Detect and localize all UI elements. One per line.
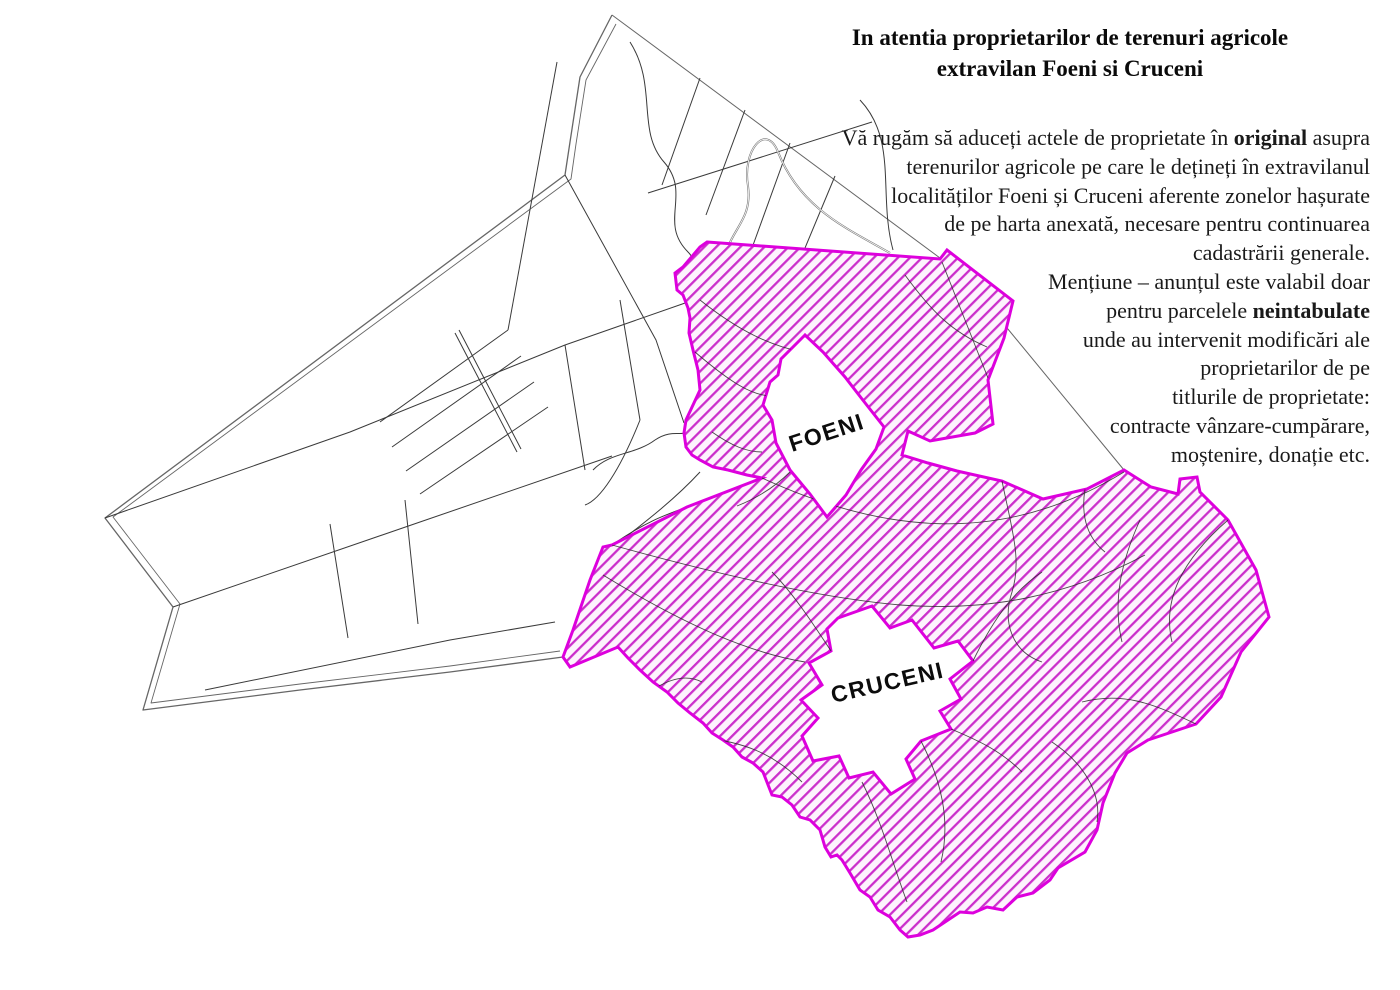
- body-line-6: Mențiune – anunțul este valabil doar: [770, 268, 1370, 297]
- body-line-2: terenurilor agricole pe care le dețineți…: [770, 153, 1370, 182]
- announcement-text-block: In atentia proprietarilor de terenuri ag…: [770, 22, 1370, 470]
- body-line-10: titlurile de proprietate:: [770, 383, 1370, 412]
- announcement-body: Vă rugăm să aduceți actele de proprietat…: [770, 124, 1370, 470]
- body-line-9: proprietarilor de pe: [770, 354, 1370, 383]
- body-line-4: de pe harta anexată, necesare pentru con…: [770, 210, 1370, 239]
- label-cruceni: CRUCENI: [828, 657, 946, 708]
- body-line-7: pentru parcelele neintabulate: [770, 297, 1370, 326]
- body-line-8: unde au intervenit modificări ale: [770, 326, 1370, 355]
- body-line-1: Vă rugăm să aduceți actele de proprietat…: [770, 124, 1370, 153]
- announcement-page: FOENI CRUCENI In atentia proprietarilor …: [0, 0, 1400, 990]
- body-line-5: cadastrării generale.: [770, 239, 1370, 268]
- title-line-2: extravilan Foeni si Cruceni: [770, 53, 1370, 84]
- body-line-11: contracte vânzare-cumpărare,: [770, 412, 1370, 441]
- body-line-3: localităților Foeni și Cruceni aferente …: [770, 182, 1370, 211]
- body-line-12: moștenire, donație etc.: [770, 441, 1370, 470]
- announcement-title: In atentia proprietarilor de terenuri ag…: [770, 22, 1370, 84]
- title-line-1: In atentia proprietarilor de terenuri ag…: [770, 22, 1370, 53]
